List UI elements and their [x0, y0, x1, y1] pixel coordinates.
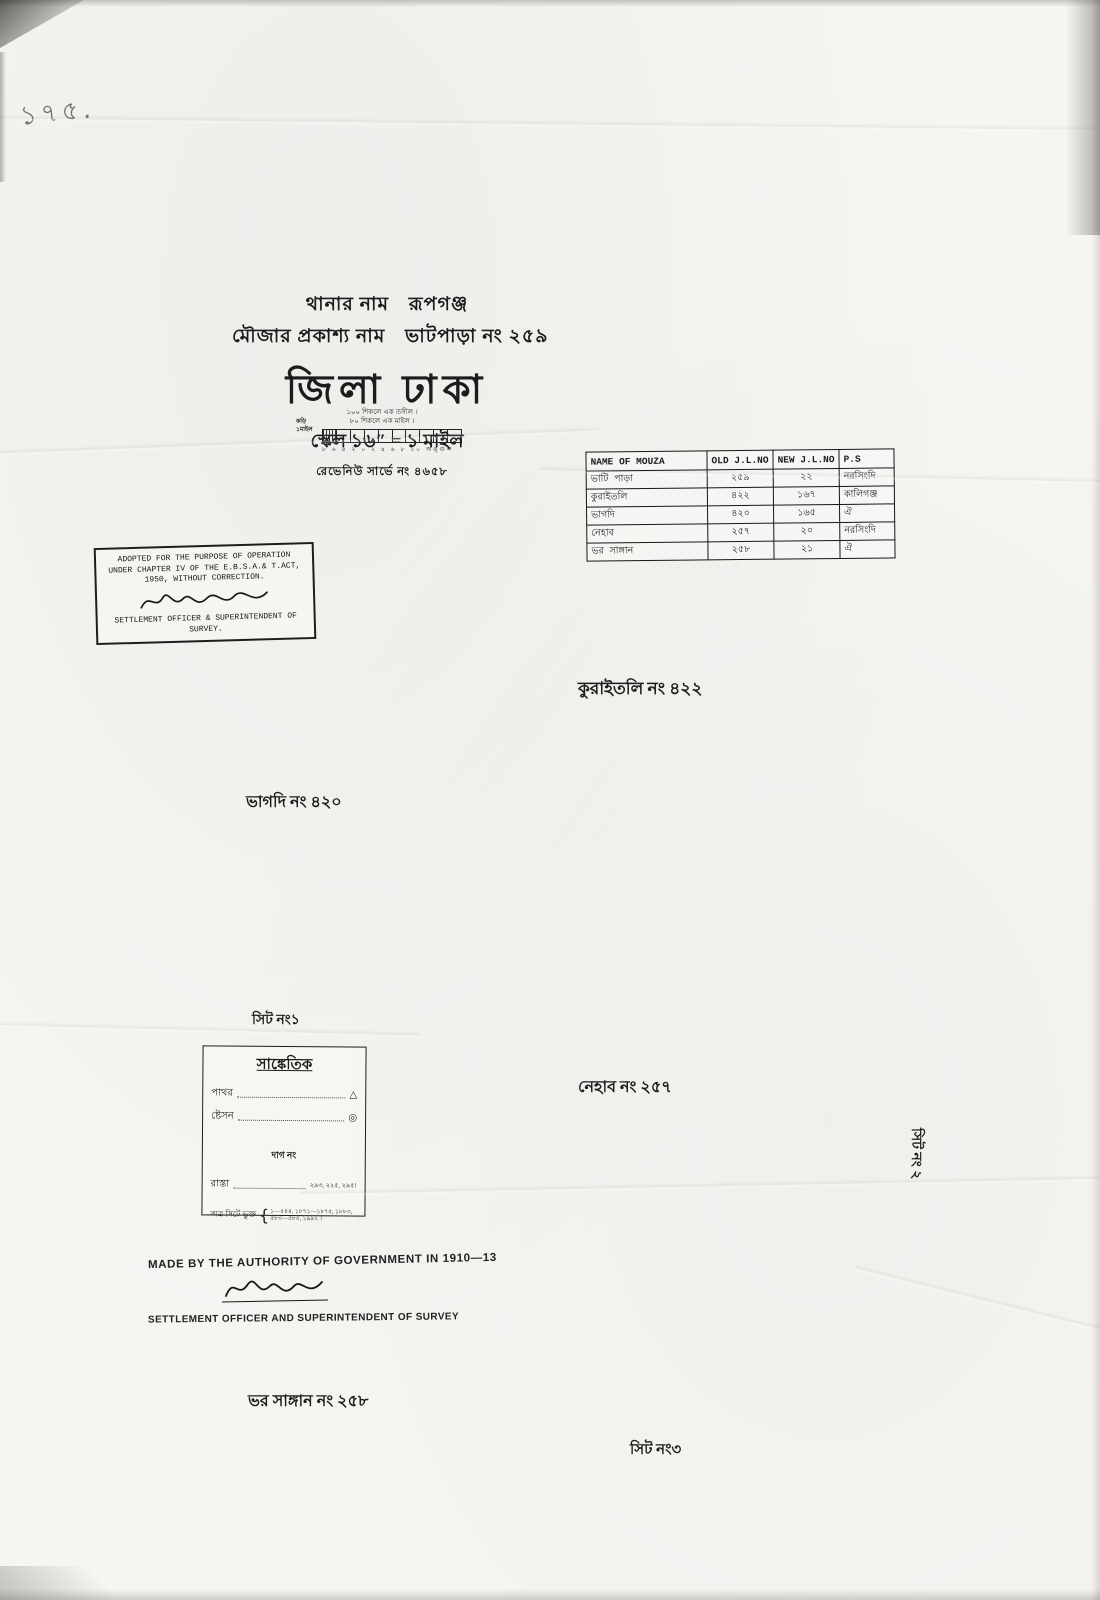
col-header-old-jl: OLD J.L.NO — [707, 450, 773, 470]
scale-bar: ৮ ৬ ৪ ২ ০ ২ ৪ ৬ ৮ ১০ অঙ্গুল — [322, 429, 462, 455]
col-header-name: NAME OF MOUZA — [586, 451, 707, 471]
mouza-line: মৌজার প্রকাশ্য নাম ভাটপাড়া নং ২৫৯ — [232, 322, 542, 354]
legend-included-row: অত্র সিটে ভুক্ত { ১—৫৪৪, ১৮৭১—১৮৭৫, ১৮৮৩… — [210, 1205, 356, 1225]
mouza-table: NAME OF MOUZA OLD J.L.NO NEW J.L.NO P.S … — [585, 448, 895, 561]
stamp-signature-scribble — [135, 584, 276, 614]
cell-old-jl: ২৫৮ — [708, 541, 774, 560]
neighbor-label-west: ভাগদি নং ৪২০ — [246, 789, 342, 816]
revenue-survey-number: রেভেনিউ সার্ভে নং ৪৬৫৮ — [296, 463, 468, 482]
footer-block: MADE BY THE AUTHORITY OF GOVERNMENT IN 1… — [148, 1256, 448, 1324]
cell-new-jl: ২২ — [773, 468, 839, 487]
authority-line: MADE BY THE AUTHORITY OF GOVERNMENT IN 1… — [148, 1253, 448, 1271]
thana-value: রূপগঞ্জ — [409, 294, 468, 315]
thana-label: থানার নাম — [306, 294, 389, 315]
officer-line: SETTLEMENT OFFICER AND SUPERINTENDENT OF… — [148, 1311, 448, 1325]
table-row: ভর সাঙ্গান ২৫৮ ২১ ঐ — [587, 540, 895, 561]
scale-bar-segment — [420, 430, 434, 442]
scale-left-labels: কড়ি ১মাইল — [296, 418, 313, 434]
cell-ps: ঐ — [840, 540, 895, 559]
neighbor-label-southwest: ভর সাঙ্গান নং ২৫৮ — [248, 1388, 368, 1415]
adoption-stamp-box: ADOPTED FOR THE PURPOSE OF OPERATION UND… — [94, 542, 317, 645]
cell-mouza-name: ভাগদি — [587, 506, 708, 525]
mouza-label: মৌজার প্রকাশ্য নাম — [232, 326, 385, 347]
scale-bar-segment — [351, 430, 365, 442]
legend-road-numbers: ২৯৩, ২২৫, ২৯৫। — [310, 1180, 357, 1191]
brace-glyph: { — [259, 1206, 269, 1225]
legend-item-label: পাথর — [211, 1085, 233, 1102]
legend-road-row: রাস্তা ২৯৩, ২২৫, ২৯৫। — [211, 1176, 357, 1194]
neighbor-label-north: কুরাইতলি নং ৪২২ — [578, 676, 702, 704]
legend-included-label: অত্র সিটে ভুক্ত — [210, 1208, 256, 1221]
cell-old-jl: ৪২২ — [707, 487, 773, 506]
legend-title: সাঙ্কেতিক — [211, 1052, 357, 1078]
legend-box: সাঙ্কেতিক পাথর △ ষ্টেসন ◎ দাগ নং রাস্তা … — [201, 1045, 366, 1216]
scale-bar-segment — [323, 430, 337, 442]
col-header-new-jl: NEW J.L.NO — [773, 449, 839, 469]
handwritten-corner-number: ১৭৫. — [18, 88, 97, 140]
scale-bar-segment — [406, 430, 420, 442]
sheet-2-label: সিট নং ২ — [903, 1128, 927, 1179]
cell-new-jl: ২১ — [774, 540, 840, 559]
mouza-table-block: NAME OF MOUZA OLD J.L.NO NEW J.L.NO P.S … — [585, 448, 895, 561]
scale-bar-ruler — [322, 429, 462, 443]
scanned-map-page: ১৭৫. থানার নাম রূপগঞ্জ মৌজার প্রকাশ্য না… — [0, 0, 1100, 1600]
scale-bar-segment — [448, 430, 461, 442]
cell-old-jl: ২৫৭ — [708, 523, 774, 542]
cell-new-jl: ১৬৫ — [774, 504, 840, 523]
cell-mouza-name: ভাটি পাড়া — [586, 470, 707, 489]
cell-new-jl: ২০ — [774, 522, 840, 541]
sheet-3-label: সিট নং৩ — [630, 1438, 681, 1463]
cell-old-jl: ৪২০ — [708, 505, 774, 524]
dotted-leader — [233, 1182, 306, 1189]
legend-road-label: রাস্তা — [211, 1176, 230, 1193]
dotted-leader — [237, 1091, 346, 1098]
legend-item: পাথর △ — [211, 1085, 357, 1103]
scale-bar-segment — [379, 430, 393, 442]
legend-dag-heading: দাগ নং — [211, 1147, 357, 1163]
scale-bar-tick-labels: ৮ ৬ ৪ ২ ০ ২ ৪ ৬ ৮ ১০ অঙ্গুল — [322, 444, 462, 455]
footer-signature-scribble — [218, 1274, 338, 1306]
cadastral-parcel-map — [0, 0, 1100, 1600]
scale-bar-block: ১০০ শিকলে এক তসীল । ৮০ শিকলে এক মাইল । ক… — [296, 408, 468, 482]
legend-item-label: ষ্টেসন — [211, 1108, 234, 1125]
scale-bar-segment — [365, 430, 379, 442]
cell-ps: নরসিংদি — [840, 522, 895, 541]
mouza-value: ভাটপাড়া নং ২৫৯ — [405, 326, 549, 347]
included-numbers-line-2: ৫৮৩—৫৮৫, ১৯৯২ । — [270, 1215, 352, 1223]
scale-bar-segment — [434, 430, 448, 442]
scale-bar-segment — [337, 430, 351, 442]
cell-ps: কালিগঞ্জ — [839, 486, 894, 505]
cell-mouza-name: ভর সাঙ্গান — [587, 542, 708, 561]
scale-bar-segment — [393, 430, 407, 442]
legend-included-numbers: ১—৫৪৪, ১৮৭১—১৮৭৫, ১৮৮৩, ৫৮৩—৫৮৫, ১৯৯২ । — [270, 1208, 352, 1223]
sheet-1-label: সিট নং১ — [252, 1008, 300, 1032]
cell-old-jl: ২৫৯ — [707, 469, 773, 488]
cell-new-jl: ১৬৭ — [773, 486, 839, 505]
cell-mouza-name: নেহাব — [587, 524, 708, 543]
scale-note-1: ১০০ শিকলে এক তসীল । — [296, 408, 468, 417]
included-numbers-line-1: ১—৫৪৪, ১৮৭১—১৮৭৫, ১৮৮৩, — [270, 1208, 352, 1216]
cell-ps: নরসিংদি — [839, 468, 894, 487]
col-header-ps: P.S — [839, 449, 894, 469]
legend-item: ষ্টেসন ◎ — [211, 1108, 357, 1126]
thana-line: থানার নাম রূপগঞ্জ — [232, 290, 542, 322]
scale-note-2: ৮০ শিকলে এক মাইল । — [296, 417, 468, 426]
scale-left-label-2: ১মাইল — [296, 426, 313, 434]
boundary-stone-triangle-icon: △ — [350, 1089, 358, 1100]
dotted-leader — [238, 1114, 345, 1121]
survey-station-circle-icon: ◎ — [348, 1112, 357, 1123]
cell-ps: ঐ — [840, 504, 895, 523]
cell-mouza-name: কুরাইতলি — [586, 488, 707, 507]
neighbor-label-center: নেহাব নং ২৫৭ — [578, 1074, 672, 1101]
scale-left-label-1: কড়ি — [296, 418, 313, 426]
